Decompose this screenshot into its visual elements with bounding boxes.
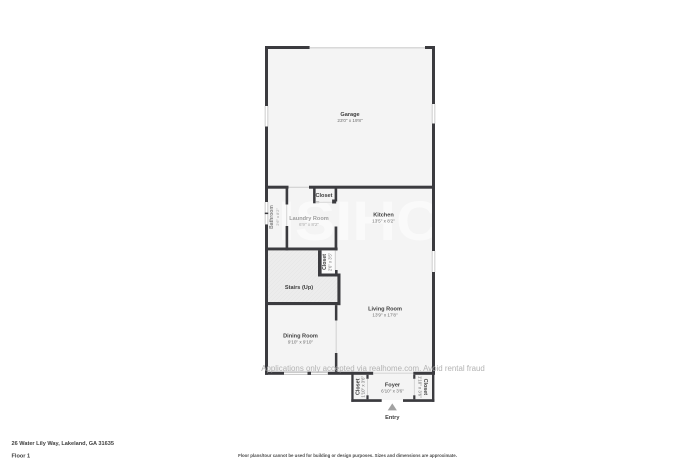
svg-text:13'9" x 17'8": 13'9" x 17'8": [372, 313, 398, 318]
svg-text:6'9" x 8'2": 6'9" x 8'2": [299, 222, 319, 227]
svg-text:Stairs (Up): Stairs (Up): [285, 285, 313, 291]
svg-text:2'6" x 8'2": 2'6" x 8'2": [275, 208, 280, 226]
svg-text:1'10" x 3'6": 1'10" x 3'6": [418, 376, 423, 398]
svg-text:23'0" x 19'8": 23'0" x 19'8": [337, 118, 363, 123]
svg-text:6'10" x 3'6": 6'10" x 3'6": [381, 389, 404, 394]
svg-text:2'6" x 3'5": 2'6" x 3'5": [327, 252, 332, 271]
svg-text:Floor plans/tour cannot be use: Floor plans/tour cannot be used for buil…: [238, 453, 457, 458]
svg-text:9'10" x 9'10": 9'10" x 9'10": [288, 340, 314, 345]
svg-text:Closet: Closet: [315, 193, 332, 199]
svg-text:Floor 1: Floor 1: [12, 453, 31, 459]
svg-text:1'10" x 3'6": 1'10" x 3'6": [361, 376, 366, 398]
svg-text:26 Water Lily Way, Lakeland, G: 26 Water Lily Way, Lakeland, GA 31635: [12, 441, 115, 447]
svg-text:13'5" x 8'2": 13'5" x 8'2": [372, 219, 395, 224]
svg-text:Entry: Entry: [385, 415, 400, 421]
svg-text:Applications only accepted via: Applications only accepted via realhome.…: [261, 364, 485, 373]
